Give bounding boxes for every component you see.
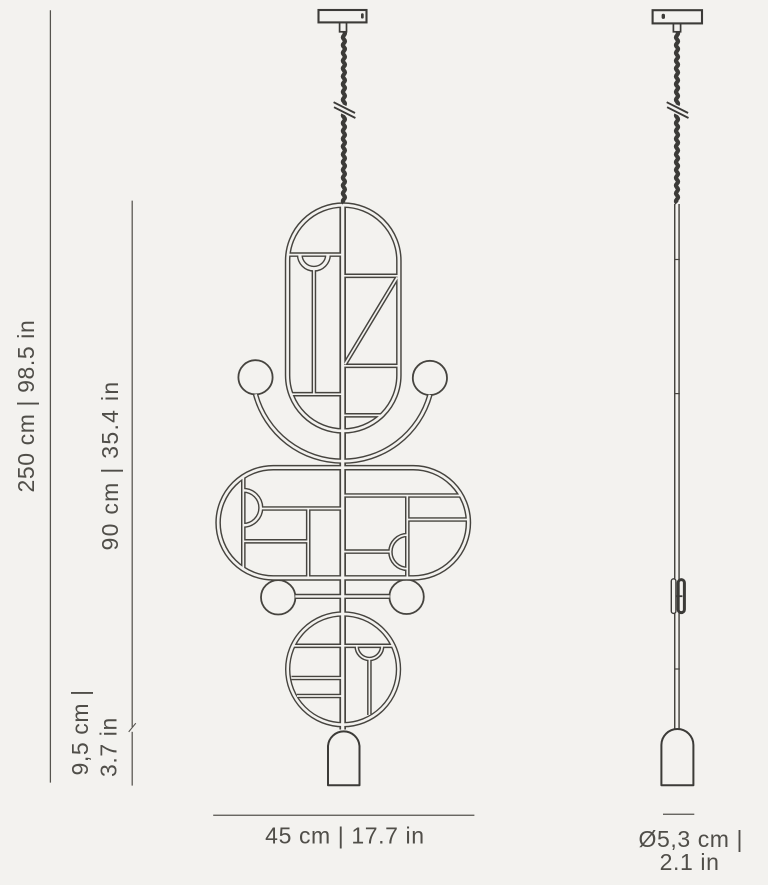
svg-text:3.7 in: 3.7 in	[96, 717, 122, 777]
svg-text:2.1 in: 2.1 in	[660, 849, 720, 875]
svg-text:90 cm | 35.4 in: 90 cm | 35.4 in	[97, 381, 123, 551]
svg-text:45 cm | 17.7 in: 45 cm | 17.7 in	[265, 823, 424, 849]
svg-text:250 cm | 98.5 in: 250 cm | 98.5 in	[13, 320, 39, 493]
svg-text:9,5 cm |: 9,5 cm |	[67, 689, 93, 775]
